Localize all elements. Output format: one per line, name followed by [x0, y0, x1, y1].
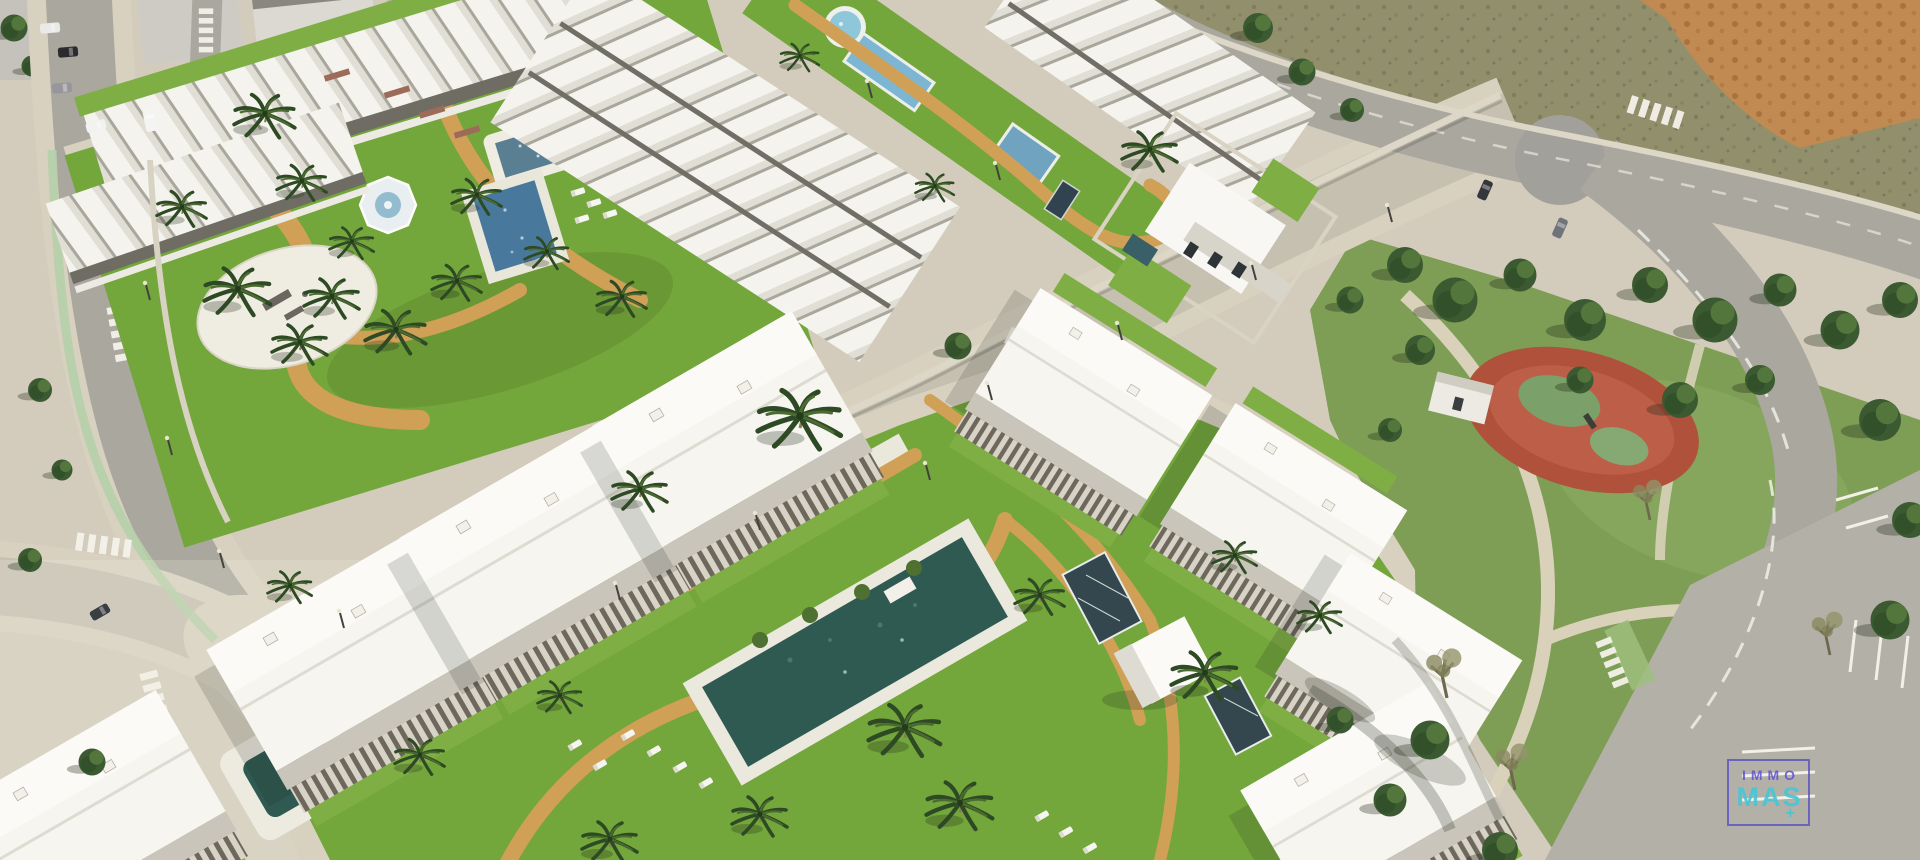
planter	[906, 560, 922, 576]
planter	[752, 632, 768, 648]
planter	[854, 584, 870, 600]
fountain	[360, 177, 416, 233]
render-scene	[0, 0, 1920, 860]
car	[40, 22, 61, 34]
aerial-development-render: IMMO MAS +	[0, 0, 1920, 860]
car	[58, 46, 79, 58]
car	[52, 82, 73, 94]
planter	[802, 607, 818, 623]
